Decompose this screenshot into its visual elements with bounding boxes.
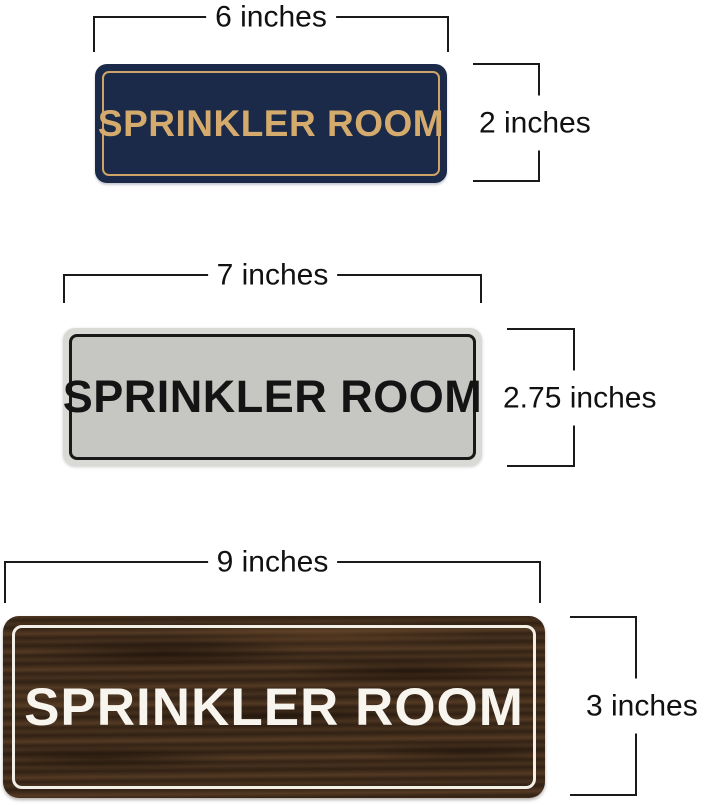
sprinkler-room-sign-silver: SPRINKLER ROOM [63, 328, 482, 466]
sign-inner-border-wood: SPRINKLER ROOM [12, 625, 536, 789]
height-dimension-label-sign2: 2.75 inches [501, 370, 658, 425]
width-dimension-bracket-sign3: 9 inches [4, 561, 541, 603]
width-dimension-label-sign1: 6 inches [206, 1, 336, 34]
width-dimension-label-sign3: 9 inches [208, 546, 338, 579]
width-dimension-bracket-sign1: 6 inches [93, 16, 449, 52]
height-dimension-label-sign1: 2 inches [477, 95, 593, 150]
sign-text-navy: SPRINKLER ROOM [98, 103, 444, 145]
sign-inner-border-silver: SPRINKLER ROOM [69, 334, 476, 460]
sign-text-silver: SPRINKLER ROOM [63, 371, 483, 423]
height-dimension-label-sign3: 3 inches [584, 679, 700, 734]
width-dimension-label-sign2: 7 inches [208, 259, 338, 292]
height-dimension-bracket-sign1: 2 inches [473, 63, 540, 182]
sign-text-wood: SPRINKLER ROOM [24, 677, 524, 738]
sign-inner-border-navy: SPRINKLER ROOM [102, 71, 440, 176]
height-dimension-bracket-sign3: 3 inches [570, 616, 637, 796]
height-dimension-bracket-sign2: 2.75 inches [507, 328, 575, 467]
product-image-canvas: 6 inches SPRINKLER ROOM 2 inches 7 inche… [0, 0, 722, 805]
width-dimension-bracket-sign2: 7 inches [63, 274, 482, 303]
sprinkler-room-sign-wood: SPRINKLER ROOM [3, 616, 545, 798]
sprinkler-room-sign-navy: SPRINKLER ROOM [95, 64, 447, 183]
